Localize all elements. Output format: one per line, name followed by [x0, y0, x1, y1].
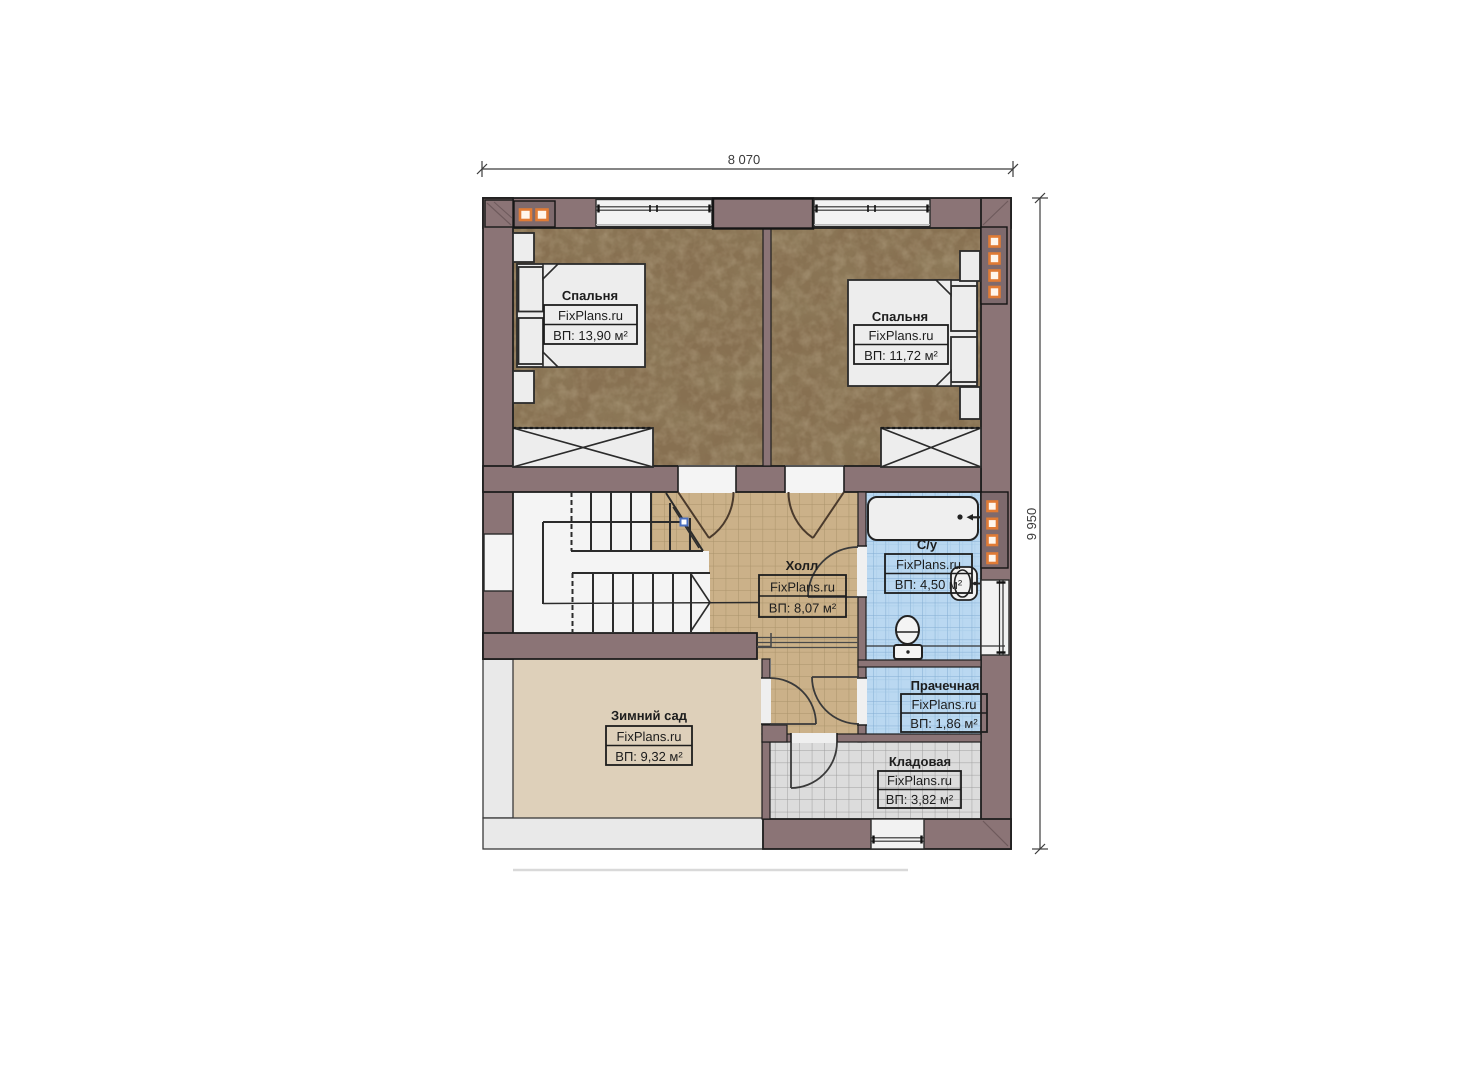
svg-text:С/у: С/у: [917, 537, 938, 552]
svg-text:ВП: 9,32 м²: ВП: 9,32 м²: [615, 749, 683, 764]
svg-text:ВП: 13,90 м²: ВП: 13,90 м²: [553, 328, 628, 343]
svg-text:FixPlans.ru: FixPlans.ru: [558, 308, 623, 323]
svg-text:ВП: 3,82 м²: ВП: 3,82 м²: [886, 792, 954, 807]
svg-text:Прачечная: Прачечная: [911, 678, 980, 693]
svg-text:Зимний сад: Зимний сад: [611, 708, 688, 723]
svg-text:ВП: 4,50 м²: ВП: 4,50 м²: [895, 577, 963, 592]
svg-text:Холл: Холл: [786, 558, 819, 573]
svg-text:FixPlans.ru: FixPlans.ru: [868, 328, 933, 343]
svg-text:ВП: 8,07 м²: ВП: 8,07 м²: [769, 601, 837, 616]
svg-text:FixPlans.ru: FixPlans.ru: [770, 580, 835, 595]
svg-text:ВП: 11,72 м²: ВП: 11,72 м²: [864, 348, 938, 363]
svg-text:ВП: 1,86 м²: ВП: 1,86 м²: [910, 716, 978, 731]
svg-text:FixPlans.ru: FixPlans.ru: [896, 557, 961, 572]
svg-text:FixPlans.ru: FixPlans.ru: [911, 697, 976, 712]
svg-text:FixPlans.ru: FixPlans.ru: [616, 729, 681, 744]
svg-text:FixPlans.ru: FixPlans.ru: [887, 773, 952, 788]
svg-text:8 070: 8 070: [728, 152, 761, 167]
svg-text:9 950: 9 950: [1024, 508, 1039, 541]
svg-text:Спальня: Спальня: [872, 309, 928, 324]
svg-text:Спальня: Спальня: [562, 288, 618, 303]
svg-text:Кладовая: Кладовая: [889, 754, 951, 769]
